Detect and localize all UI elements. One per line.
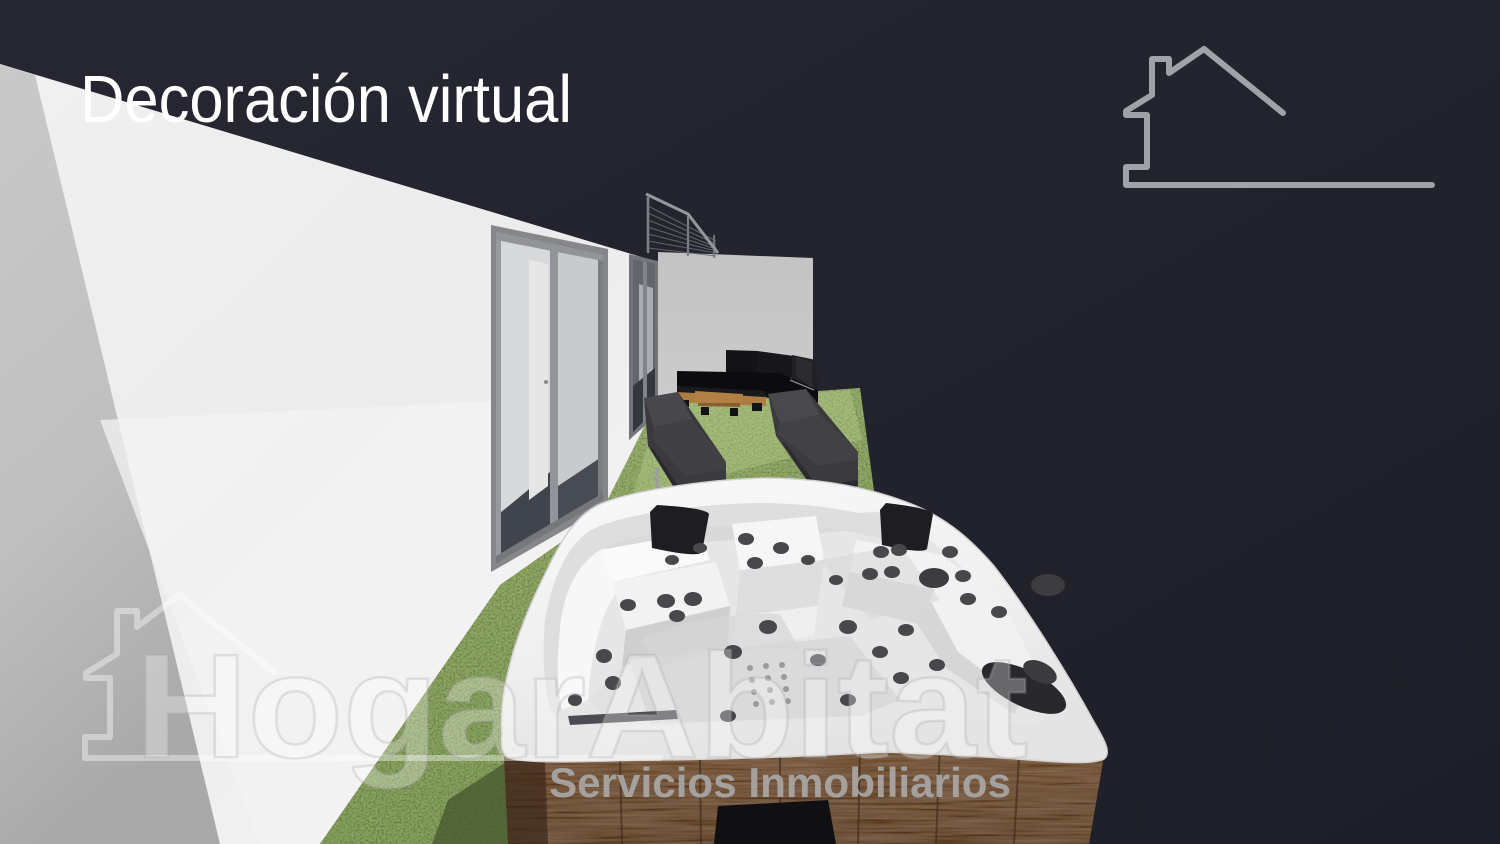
svg-text:Servicios Inmobiliarios: Servicios Inmobiliarios bbox=[549, 759, 1011, 806]
svg-text:Decoración virtual: Decoración virtual bbox=[80, 62, 572, 137]
